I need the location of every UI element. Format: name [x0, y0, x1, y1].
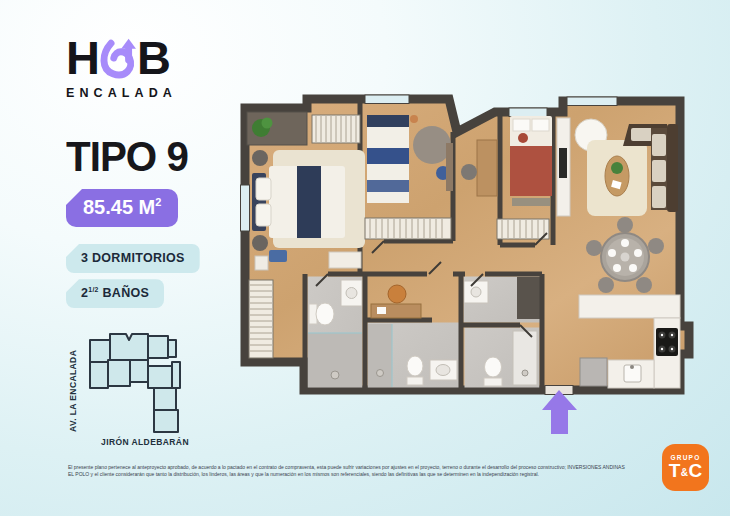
- keyplan-unit: [154, 410, 178, 432]
- coffee-table: [605, 156, 629, 196]
- bench: [269, 250, 287, 262]
- legal-disclaimer: El presente plano pertenece al anteproye…: [68, 464, 630, 477]
- bedroom-1: [247, 112, 365, 270]
- feature-badge-bathrooms: 21/2 BAÑOS: [66, 279, 164, 308]
- brand-subtitle: ENCALADA: [66, 86, 206, 100]
- dining-chair: [586, 240, 602, 256]
- service-bathroom: [465, 328, 540, 388]
- area-badge: 85.45 M2: [66, 189, 178, 227]
- bed: [367, 115, 409, 203]
- bed: [252, 166, 345, 238]
- cooktop: [656, 328, 678, 356]
- sink: [624, 365, 641, 382]
- keyplan-highlighted-unit: [110, 334, 148, 360]
- keyplan-unit: [108, 360, 130, 386]
- round-rug: [413, 126, 451, 164]
- wardrobe: [365, 218, 451, 239]
- flyer-page: H B ENCALADA TIPO 9 85.45 M2 3 DORMITORI…: [0, 0, 730, 516]
- feature-sup: 1/2: [88, 286, 98, 293]
- wardrobe: [312, 115, 360, 143]
- feature-badge-bedrooms: 3 DORMITORIOS: [66, 244, 200, 273]
- tv-console: [329, 252, 361, 268]
- bed: [510, 116, 552, 206]
- desk-chair: [388, 285, 406, 303]
- entrance-arrow-icon: [542, 390, 577, 434]
- building-keyplan: [86, 330, 198, 434]
- area-superscript: 2: [155, 196, 161, 208]
- tc-wordmark: T & C: [669, 461, 703, 480]
- feature-text: 3 DORMITORIOS: [81, 251, 185, 265]
- nightstand: [252, 235, 268, 251]
- loop-arrow-icon: [99, 36, 136, 82]
- bathroom-2: [368, 323, 460, 388]
- feature-text-post: BAÑOS: [99, 286, 149, 300]
- dresser: [255, 256, 268, 270]
- bedroom-2: [365, 115, 453, 239]
- desk: [477, 140, 497, 196]
- refrigerator: [580, 358, 607, 386]
- street-label-jiron-aldebaran: JIRÓN ALDEBARÁN: [86, 437, 204, 447]
- window: [241, 185, 250, 231]
- plant-icon: [611, 162, 623, 174]
- brand-letter-b: B: [137, 34, 169, 81]
- dining-chair: [617, 217, 633, 233]
- keyplan-unit: [130, 360, 148, 382]
- keyplan-unit: [172, 362, 180, 388]
- half-bathroom: [464, 277, 541, 323]
- grupo-tc-logo: GRUPO T & C: [662, 444, 709, 491]
- walk-in-closet: [249, 280, 273, 358]
- wardrobe: [497, 219, 549, 239]
- keyplan-unit: [148, 336, 168, 358]
- keyplan-unit: [148, 366, 172, 388]
- area-value: 85.45 M: [83, 196, 155, 218]
- window: [567, 97, 617, 106]
- keyplan-unit: [168, 340, 176, 357]
- keyplan-unit: [90, 340, 110, 362]
- street-label-av-la-encalada: AV. LA ENCALADA: [68, 332, 80, 432]
- plant-icon: [262, 118, 273, 129]
- dining-chair: [598, 277, 614, 293]
- decor: [410, 115, 418, 123]
- bathroom-1: [308, 277, 363, 388]
- brand-wordmark: H B: [66, 34, 206, 81]
- keyplan-unit: [90, 362, 108, 388]
- brand-letter-h: H: [66, 34, 98, 81]
- window: [365, 95, 409, 104]
- dining-chair: [648, 238, 664, 254]
- feature-badges: 3 DORMITORIOS 21/2 BAÑOS: [66, 244, 200, 314]
- unit-type-title: TIPO 9: [66, 133, 188, 181]
- shelf: [446, 143, 453, 191]
- kitchen-counter: [579, 295, 680, 318]
- keyplan-unit: [154, 388, 176, 410]
- brand-logo: H B ENCALADA: [66, 34, 206, 100]
- dining-chair: [636, 277, 652, 293]
- tv: [559, 148, 567, 178]
- floorplan-render: [225, 88, 695, 438]
- desk-chair: [461, 164, 477, 180]
- window: [509, 108, 547, 117]
- nightstand: [252, 150, 268, 166]
